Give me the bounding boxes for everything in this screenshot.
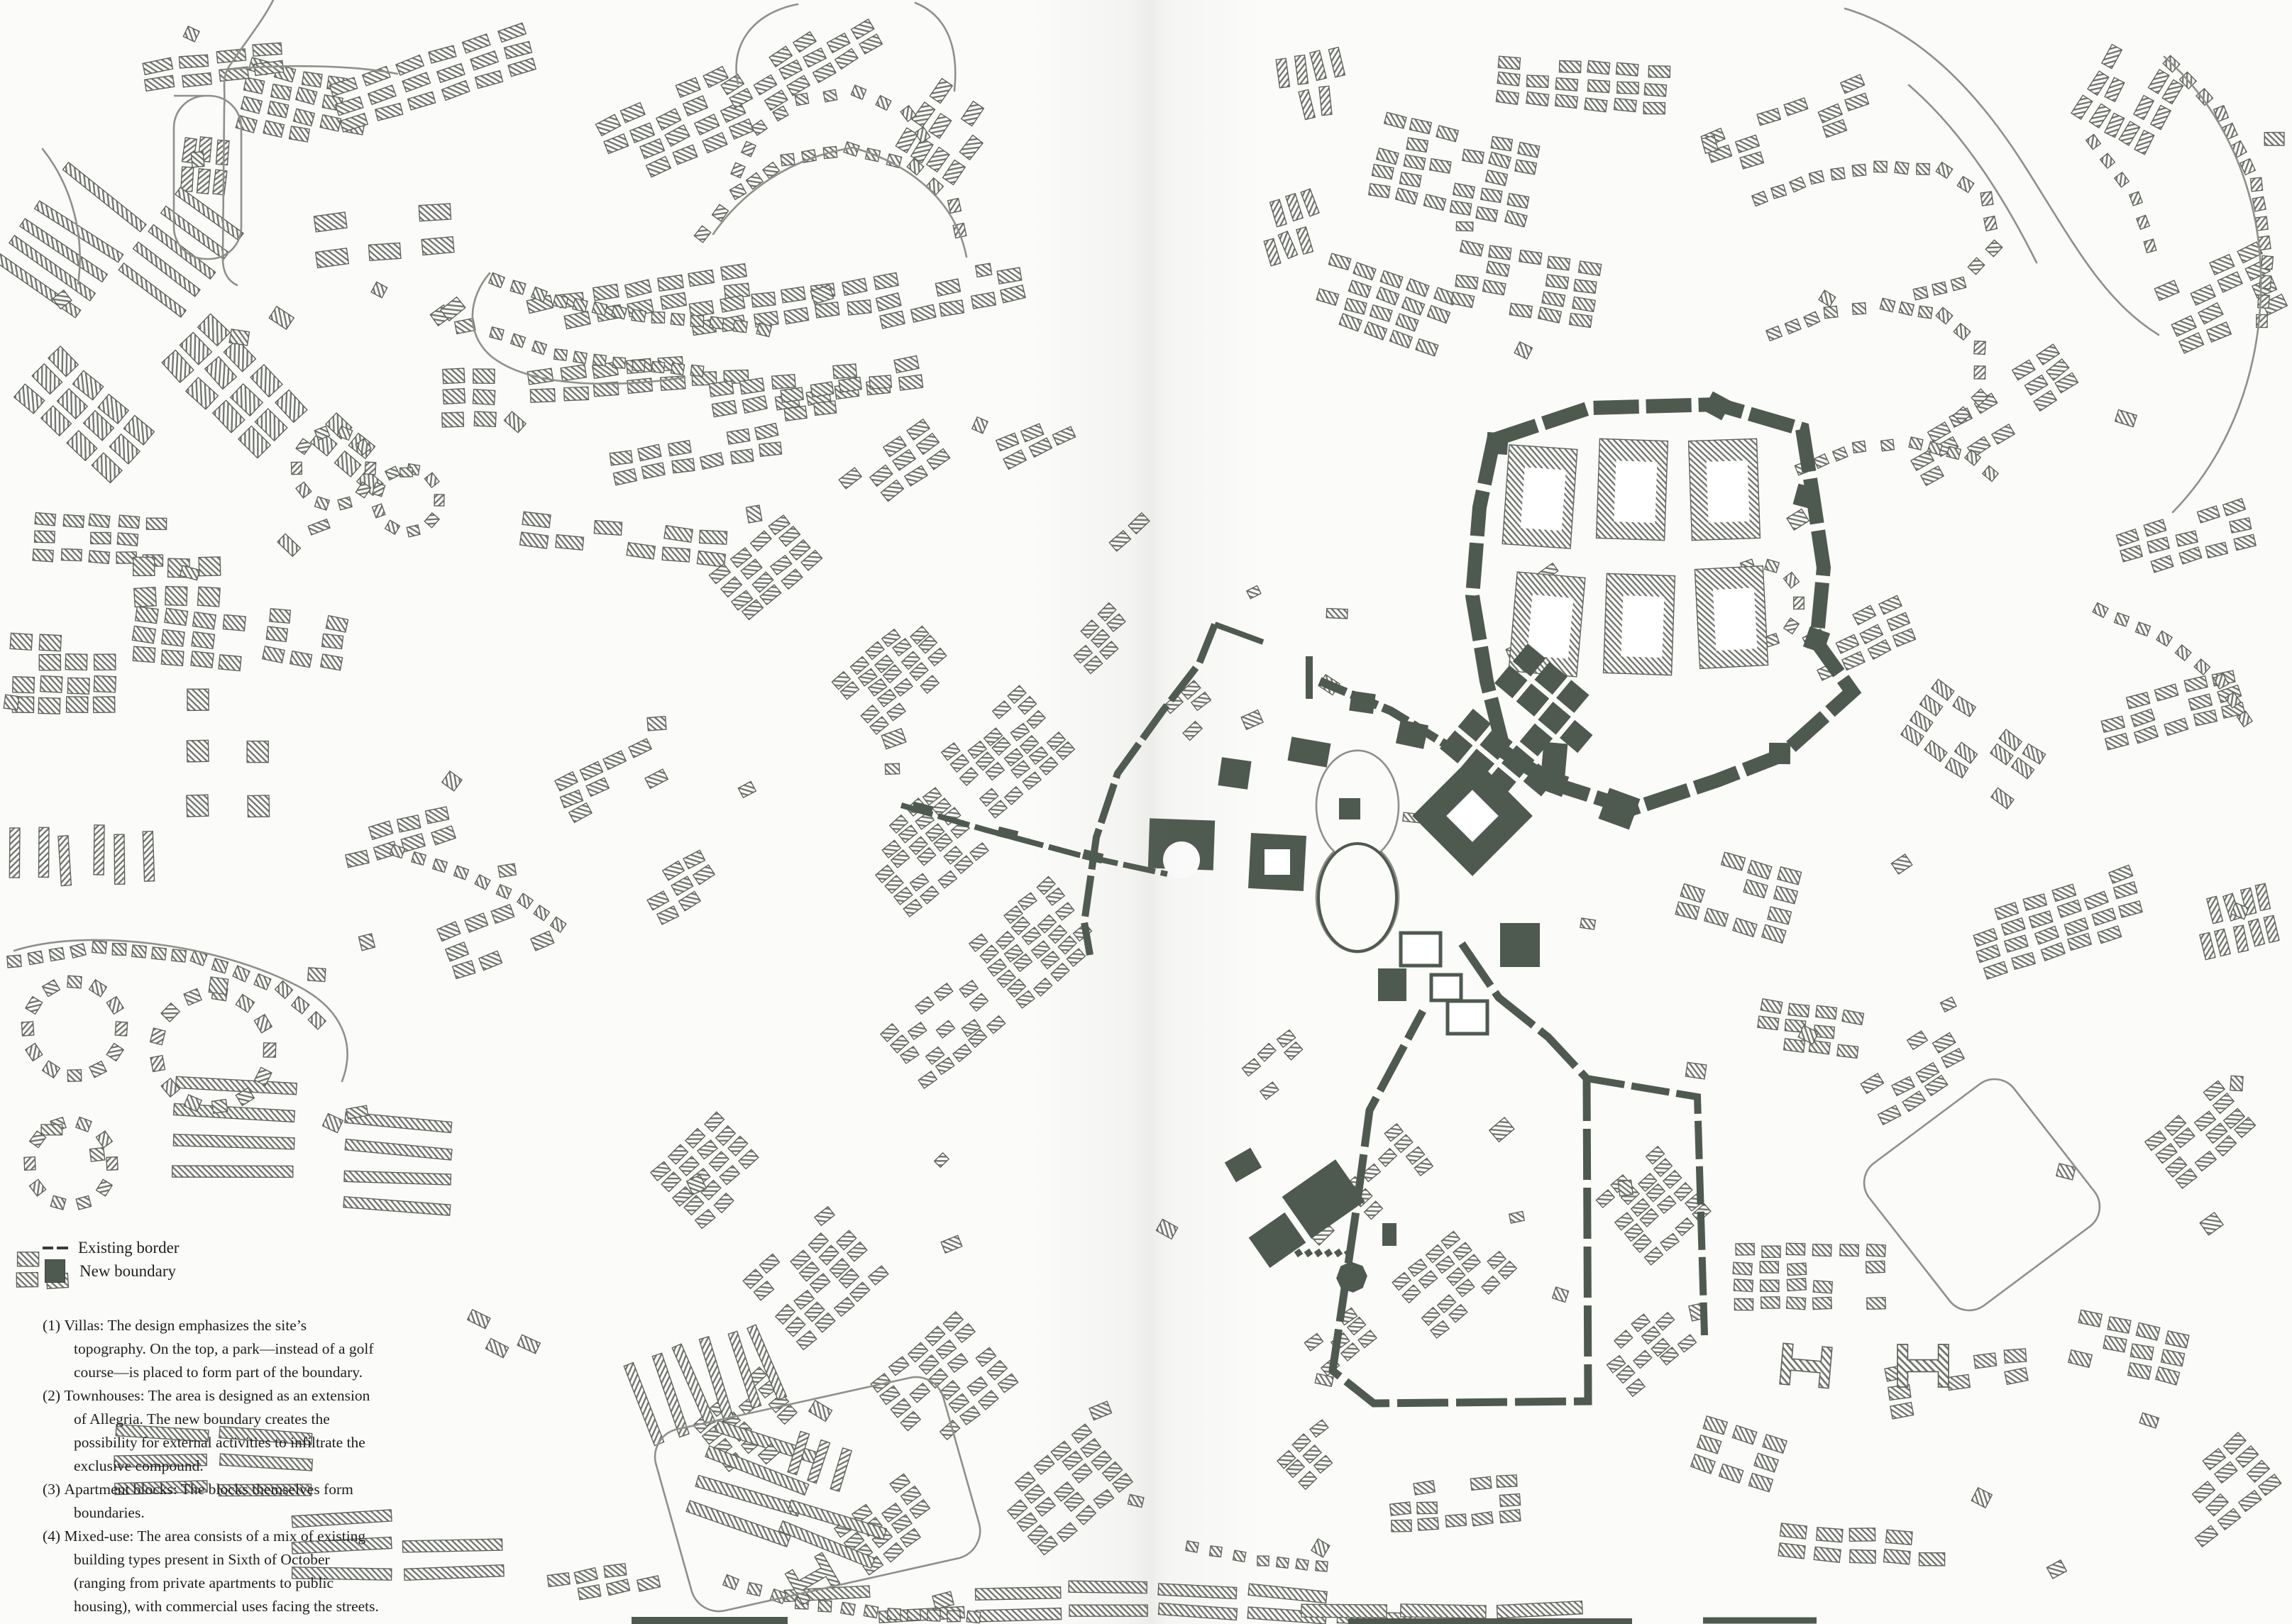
legend-label: New boundary	[79, 1262, 176, 1281]
legend-label: Existing border	[78, 1239, 179, 1257]
map-legend: Existing border New boundary	[43, 1236, 179, 1283]
note-apartment-blocks: (3) Apartment blocks: The blocks themsel…	[43, 1478, 382, 1525]
legend-item-existing-border: Existing border	[43, 1236, 179, 1259]
map-notes: (1) Villas: The design emphasizes the si…	[43, 1314, 382, 1618]
book-page-scan: { "legend": { "items": [ { "symbol": "ex…	[0, 0, 2292, 1624]
legend-item-new-boundary: New boundary	[43, 1259, 179, 1283]
new-boundary-swatch-icon	[45, 1259, 65, 1283]
note-villas: (1) Villas: The design emphasizes the si…	[43, 1314, 382, 1384]
note-townhouses: (2) Townhouses: The area is designed as …	[43, 1384, 382, 1478]
note-mixed-use: (4) Mixed-use: The area consists of a mi…	[43, 1525, 382, 1618]
existing-border-line-icon	[43, 1247, 68, 1249]
